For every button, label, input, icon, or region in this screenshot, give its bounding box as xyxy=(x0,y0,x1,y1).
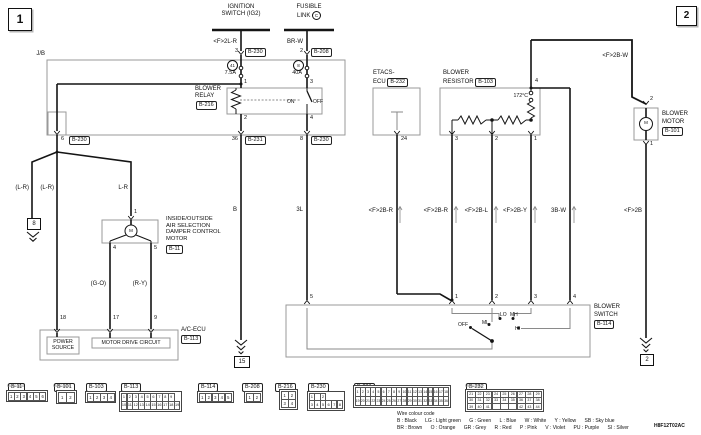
switch-arm xyxy=(472,329,492,342)
switch-pin-4: 4 xyxy=(573,294,576,301)
wire-label-etacs-2B-R: <F>2B-R xyxy=(366,208,393,215)
motor-pin-2: 2 xyxy=(650,96,653,103)
fuse-8-symbol xyxy=(305,66,309,70)
wire-2B-W xyxy=(531,40,646,104)
relay-pin-3: 3 xyxy=(310,79,313,86)
damper-motor-label: INSIDE/OUTSIDE AIR SELECTION DAMPER CONT… xyxy=(166,216,221,242)
wire-label-2B-Y: <F>2B-Y xyxy=(500,208,527,215)
connector-ref: B-230 xyxy=(245,48,266,57)
connector-pins-B-230: 12345678 xyxy=(307,391,345,411)
wiring-svg xyxy=(0,0,701,435)
resistor-ref: B-103 xyxy=(475,78,496,87)
blower-relay-label-1: BLOWER xyxy=(195,86,221,93)
thermal-fuse-temp: 172°C xyxy=(504,93,528,100)
acecu-ref: B-113 xyxy=(181,335,201,344)
switch-pos-lo: LO xyxy=(500,312,507,319)
thermal-fuse-symbol xyxy=(529,91,533,95)
pin-cell: 2 xyxy=(66,392,75,403)
relay-off-label: OFF xyxy=(313,99,323,106)
ground-symbols xyxy=(27,232,652,354)
blower-switch-label-1: BLOWER xyxy=(594,304,620,311)
relay-pin-4: 4 xyxy=(310,115,313,122)
connector-pins-B-208: 12 xyxy=(244,391,263,403)
damper-label-2: AIR SELECTION xyxy=(166,223,221,230)
damper-label-3: DAMPER CONTROL xyxy=(166,229,221,236)
pin-row: 123456789101112131415161718 xyxy=(355,387,449,396)
pin-row: 34 xyxy=(281,399,296,407)
relay-coil xyxy=(232,90,241,109)
switch-pos-mh: MH xyxy=(510,312,518,319)
connector-code: MB803760 xyxy=(465,384,482,388)
pin-row: 123456 xyxy=(8,392,46,400)
pin-number: 6 xyxy=(61,136,64,143)
switch-pos-hi: HI xyxy=(515,326,520,333)
legend-row-1: B : Black LG : Light green G : Green L :… xyxy=(397,418,615,425)
pin-row: 345678 xyxy=(309,401,343,409)
fuse-41-symbol xyxy=(239,66,243,70)
pin-cell: 36 xyxy=(443,396,449,406)
wire-label-LR-gnd: (L-R) xyxy=(9,185,29,192)
fusible-link-label-2: LINK C xyxy=(284,11,334,20)
switch-pos-off: OFF xyxy=(458,322,468,329)
motor-pin-1: 1 xyxy=(650,141,653,148)
arrow-up-icon xyxy=(398,207,402,224)
connector-pins-B-114: 12345 xyxy=(197,391,234,403)
pin-number: 3 xyxy=(230,48,238,55)
damper-motor-ref: B-11 xyxy=(166,245,183,254)
doc-code: H8F12T02AC xyxy=(654,423,685,430)
blower-motor-ref: B-101 xyxy=(662,127,683,136)
switch-pos-ml: ML xyxy=(482,320,489,327)
legend-title: Wire colour code xyxy=(397,411,435,418)
sheet-tag-2: 2 xyxy=(676,6,697,26)
fusible-link-word: LINK xyxy=(297,13,310,19)
wire-label-BR-W: BR-W xyxy=(277,39,303,46)
arrow-up-icon xyxy=(494,207,498,224)
wire-label-G-O: (G-O) xyxy=(86,281,106,288)
connector-pins-B-113: 12345678910111213141516171819 xyxy=(119,391,182,412)
blower-motor-label-1: BLOWER xyxy=(662,111,688,118)
resistor-pin-1: 1 xyxy=(534,136,537,143)
wire-label-2B-L: <F>2B-L xyxy=(461,208,488,215)
pin-row: 394041424344 xyxy=(467,404,542,410)
motor-letter: M xyxy=(642,120,650,125)
connector-pins-B-101: 12 xyxy=(56,390,77,404)
fuse-8-rating: 40A xyxy=(284,70,302,77)
connector-pins-B-216: 1234 xyxy=(279,389,298,410)
pin-cell: 6 xyxy=(39,392,46,401)
sheet-tag-1: 1 xyxy=(8,8,32,31)
etacs-pin-24: 24 xyxy=(401,136,407,143)
connector-pins-B-231: 1234567891011121314151617181920212223242… xyxy=(353,385,451,408)
fusible-link-id: C xyxy=(312,11,321,20)
blower-motor-label-2: MOTOR xyxy=(662,119,684,126)
connector-ref: B-230 xyxy=(69,136,90,145)
resistor-pin-2: 2 xyxy=(495,136,498,143)
motor-letter: M xyxy=(127,228,135,233)
switch-pin-1: 1 xyxy=(455,294,458,301)
pin-number: 36 xyxy=(224,136,238,143)
connector-code: MU801648 xyxy=(7,384,24,388)
ignition-switch-label-2: SWITCH (IG2) xyxy=(211,11,271,18)
damper-label-4: MOTOR xyxy=(166,236,221,243)
connector-ref: B-230 xyxy=(311,136,332,145)
relay-internals xyxy=(232,88,313,114)
legend-row-2: BR : Brown O : Orange GR : Grey R : Red … xyxy=(397,425,629,432)
blower-relay-label-2: RELAY xyxy=(195,93,214,100)
connector-pins-B-232: 2122232425262728293031323334353637383940… xyxy=(465,389,544,412)
damper-label-1: INSIDE/OUTSIDE xyxy=(166,216,221,223)
thermal-resistor xyxy=(528,102,535,118)
ignition-switch-label-1: IGNITION xyxy=(211,4,271,11)
switch-internals xyxy=(307,308,570,349)
damper-pin-4: 4 xyxy=(113,245,116,252)
wire-label-3L: 3L xyxy=(290,207,303,214)
switch-pivot xyxy=(491,340,494,343)
blower-switch-ref: B-114 xyxy=(594,320,614,329)
connector-ref: B-231 xyxy=(245,136,266,145)
blower-switch-label-2: SWITCH xyxy=(594,312,618,319)
pin-row: 192021222324252627282930313233343536 xyxy=(355,396,449,405)
resistor-label-2: RESISTOR B-103 xyxy=(443,78,496,87)
wire-label-R-Y: (R-Y) xyxy=(128,281,147,288)
wire-label-2B-R: <F>2B-R xyxy=(421,208,448,215)
ref-8-pointer-icon xyxy=(27,232,39,237)
resistor-pin-4: 4 xyxy=(535,78,538,85)
resistor-element-1 xyxy=(458,116,486,124)
wire-label-2B: <F>2B xyxy=(617,208,642,215)
pin-row: 10111213141516171819 xyxy=(121,401,180,409)
wire-label-LR-mid: (L-R) xyxy=(35,185,54,192)
ground-15-icon xyxy=(235,340,247,345)
arrow-up-icon xyxy=(454,207,458,224)
relay-arm xyxy=(307,91,312,102)
resistor-pin-3: 3 xyxy=(455,136,458,143)
ground-ref-15: 15 xyxy=(234,356,250,368)
wire-label-3B-W: 3B-W xyxy=(546,208,566,215)
power-source-label: POWERSOURCE xyxy=(48,339,78,351)
pin-cell: 4 xyxy=(288,399,296,408)
pin-cell: 2 xyxy=(253,393,261,402)
pin-row: 12345 xyxy=(199,393,232,401)
pin-row: 12 xyxy=(246,393,261,401)
switch-pin-5: 5 xyxy=(310,294,313,301)
she​et-ref-8: 8 xyxy=(27,218,41,230)
ground-ref-2: 2 xyxy=(640,354,654,366)
wiring-diagram: 1 2 IGNITION SWITCH (IG2) FUSIBLE LINK C… xyxy=(0,0,701,435)
etacs-label-1: ETACS- xyxy=(373,70,395,77)
wire-label-B: B xyxy=(229,207,237,214)
connector-pins-B-11: 123456 xyxy=(6,390,48,402)
pin-cell: 8 xyxy=(337,400,343,409)
etacs-internals xyxy=(391,112,403,130)
pin-cell: 19 xyxy=(174,401,181,410)
acecu-pin-9: 9 xyxy=(154,315,157,322)
acecu-name: A/C-ECU xyxy=(181,327,206,334)
relay-pin-2: 2 xyxy=(244,115,247,122)
switch-pin-3: 3 xyxy=(534,294,537,301)
pin-cell: 4 xyxy=(107,393,115,402)
wire-label-LR-motor: L-R xyxy=(114,185,128,192)
etacs-label-2: ECU B-232 xyxy=(373,78,408,87)
blower-relay-ref: B-216 xyxy=(196,101,217,110)
connector-ref: B-208 xyxy=(311,48,332,57)
motor-drive-circuit-label: MOTOR DRIVE CIRCUIT xyxy=(93,340,169,347)
switch-contacts xyxy=(470,318,520,343)
ground-2-icon xyxy=(640,338,652,343)
pin-cell: 44 xyxy=(533,403,542,410)
damper-pin-5: 5 xyxy=(154,245,157,252)
arrow-up-icon xyxy=(572,207,576,224)
wire-label-2L-R: <F>2L-R xyxy=(203,39,237,46)
connector-code: MU801325 xyxy=(53,384,70,388)
jb-label: J/B xyxy=(28,51,45,58)
resistor-label-1: BLOWER xyxy=(443,70,469,77)
pin-cell: 5 xyxy=(225,393,232,402)
fusible-link-label-1: FUSIBLE xyxy=(284,4,334,11)
pin-number: 2 xyxy=(295,48,303,55)
contact-off xyxy=(470,327,472,329)
pin-row: 1234 xyxy=(87,393,114,401)
pin-row: 12 xyxy=(58,392,75,402)
damper-pin-1: 1 xyxy=(134,209,137,216)
arrow-up-icon xyxy=(533,207,537,224)
relay-on-label: ON xyxy=(287,99,295,106)
connector-pins-B-103: 1234 xyxy=(85,391,116,403)
lr-split xyxy=(32,135,131,330)
connector-forks xyxy=(54,51,649,333)
fuse-41-rating: 7.5A xyxy=(217,70,236,77)
pin-number: 8 xyxy=(295,136,303,143)
etacs-ref: B-232 xyxy=(387,78,408,87)
acecu-pin-17: 17 xyxy=(113,315,119,322)
acecu-pin-18: 18 xyxy=(60,315,66,322)
resistor-element-2 xyxy=(498,116,526,124)
relay-pin-1: 1 xyxy=(244,79,247,86)
wire-label-2B-W: <F>2B-W xyxy=(600,53,628,60)
switch-pin-2: 2 xyxy=(495,294,498,301)
